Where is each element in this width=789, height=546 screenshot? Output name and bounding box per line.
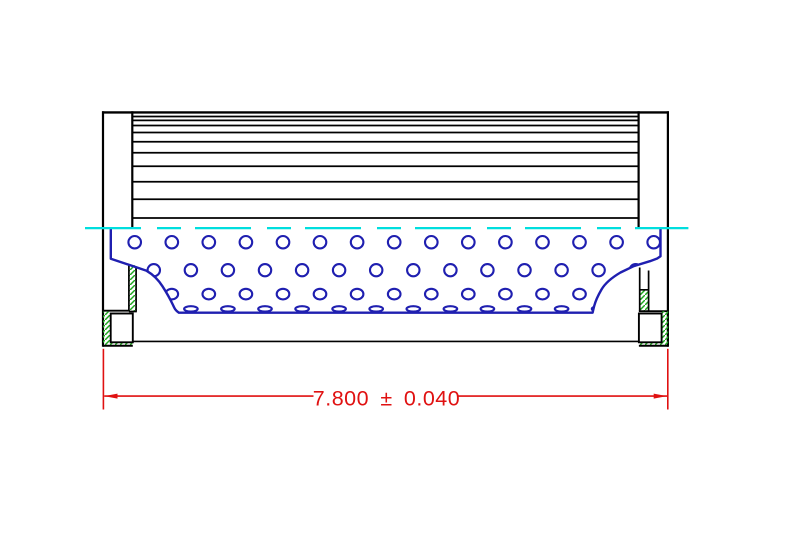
svg-text:7.800 ± 0.040: 7.800 ± 0.040 — [313, 387, 460, 411]
